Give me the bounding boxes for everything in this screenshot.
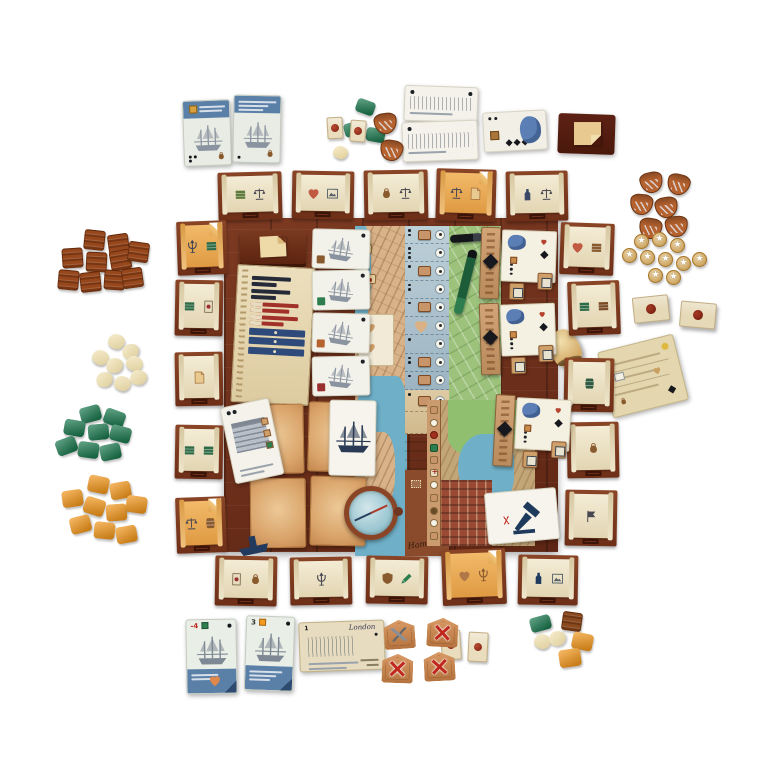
edge-tile-right-4[interactable] (567, 422, 620, 479)
tag-token[interactable] (418, 266, 431, 276)
brown-crate-supply-piece[interactable] (83, 229, 106, 251)
seal-blocks-right-piece[interactable] (679, 300, 717, 329)
edge-tile-left-1[interactable] (176, 220, 228, 276)
pip (408, 288, 411, 291)
folded-corner (208, 498, 221, 511)
panel-plaque (411, 480, 421, 488)
tile-scroll (181, 500, 221, 545)
seal-tiles-bottom-piece[interactable] (467, 631, 489, 662)
coin-supply-piece[interactable] (676, 256, 691, 271)
ship-card-mint[interactable]: -4 (185, 619, 237, 695)
brown-crate-supply-piece[interactable] (127, 241, 151, 264)
caption-line (309, 661, 359, 665)
pip-icon (227, 624, 231, 628)
caption-line (309, 667, 347, 670)
star-circle-icon (435, 302, 445, 312)
tile-scroll (181, 356, 218, 399)
bag-icon (216, 150, 227, 161)
coin-supply-piece[interactable] (622, 248, 637, 263)
chart-bar (251, 288, 290, 294)
pip-icons (189, 155, 197, 163)
track-space (405, 372, 449, 390)
bag-icon (264, 148, 275, 159)
scales-icon (398, 185, 413, 200)
edge-tile-bottom-4[interactable] (441, 548, 507, 606)
chart-bar (251, 301, 299, 307)
pip-icons (523, 431, 526, 443)
crate-icon (233, 187, 248, 202)
purse-supply-piece[interactable] (665, 172, 692, 198)
edge-tile-bottom-1[interactable] (215, 555, 278, 606)
ship-card-mint[interactable]: 3 (244, 615, 296, 692)
barrel-icon (581, 375, 596, 390)
heart-icon (306, 185, 321, 200)
board-ship-card-4[interactable] (312, 355, 371, 396)
star-circle-icon (435, 357, 445, 367)
chart-bar (250, 314, 298, 320)
tag-track-icon (430, 456, 438, 464)
green-track-icon (430, 444, 438, 452)
damage-tokens-piece[interactable] (383, 619, 416, 650)
tile-slot (457, 214, 473, 219)
game-table-photo: Hamburg (0, 0, 780, 780)
purse-supply-piece[interactable] (629, 193, 654, 216)
tile-slot (467, 598, 483, 604)
card-icon (201, 299, 216, 314)
blue-map-blot (519, 116, 541, 144)
goods-icon (259, 619, 266, 626)
green-block-supply-piece[interactable] (63, 418, 86, 437)
pip-icon (375, 633, 378, 636)
auction-card[interactable] (484, 487, 560, 545)
green-block-supply-piece[interactable] (99, 442, 123, 462)
mini-tag-token[interactable] (538, 345, 554, 363)
tag-token[interactable] (418, 375, 431, 385)
coin-supply-piece[interactable] (648, 268, 663, 283)
green-block-supply-piece[interactable] (77, 441, 100, 460)
edge-tile-left-2[interactable] (175, 280, 224, 337)
track-space (405, 335, 449, 353)
corner-mark (280, 678, 292, 690)
engraving-card[interactable] (401, 120, 478, 163)
mixed-pieces-bottom-piece[interactable] (528, 614, 552, 634)
folded-corner (209, 222, 222, 235)
pip-icons (237, 156, 242, 159)
bag-icon (618, 395, 630, 407)
ship-silhouette-card[interactable] (328, 400, 376, 477)
edge-tile-right-1[interactable] (559, 222, 615, 276)
green-block-supply-piece[interactable] (54, 435, 79, 457)
pip-icon (361, 318, 365, 322)
heart-icon (540, 238, 548, 246)
tile-scroll (182, 224, 221, 267)
mini-tag-token[interactable] (511, 357, 527, 375)
caption-line (360, 659, 378, 662)
tile-scroll (298, 175, 349, 212)
goods-mark (317, 297, 325, 305)
tile-scroll (221, 560, 272, 599)
blue-figure-blot (506, 309, 525, 325)
green-block-supply-piece[interactable] (108, 424, 132, 445)
damage-tokens-piece[interactable] (382, 653, 414, 683)
edge-tile-bottom-5[interactable] (518, 554, 579, 605)
city-card-london[interactable]: 1 London (298, 620, 386, 673)
tile-slot (587, 328, 603, 334)
folded-note[interactable] (259, 235, 286, 257)
trident-icon (185, 239, 201, 255)
cross-track-icon (430, 469, 438, 477)
tile-slot (540, 598, 556, 603)
edge-tile-left-5[interactable] (175, 496, 227, 554)
seal-track-icon (430, 431, 438, 439)
ship-icon (324, 273, 357, 306)
heart-icon (538, 310, 546, 318)
mixed-pieces-bottom-piece[interactable] (548, 629, 568, 647)
tile-scroll (447, 552, 501, 598)
card-deck[interactable] (240, 230, 306, 264)
pip-icons (408, 393, 411, 396)
tile-slot (389, 597, 405, 602)
edge-tile-right-5[interactable] (565, 490, 618, 547)
mini-tag-token[interactable] (522, 451, 538, 469)
tag-icon (261, 417, 269, 425)
pip (408, 357, 411, 360)
board-ship-card-1[interactable] (311, 228, 370, 270)
contract-strip (479, 227, 502, 300)
reference-chart-card[interactable] (230, 264, 315, 406)
edge-tile-top-3[interactable] (364, 169, 429, 220)
pip-icon (494, 117, 497, 120)
card-footer (189, 150, 227, 162)
contract-card-3[interactable] (492, 394, 574, 472)
star-circle-icon (435, 375, 445, 385)
city-etching (410, 96, 472, 111)
heart-icon (457, 568, 473, 584)
mixed-pieces-bottom-piece[interactable] (558, 648, 582, 669)
ship-icon (324, 316, 359, 351)
star-circle-icon (435, 284, 445, 294)
pip-icons (408, 229, 411, 236)
blank-card-slot[interactable] (250, 478, 307, 548)
star-circle-icon (435, 266, 445, 276)
heart-icon (570, 239, 586, 255)
folded-corner (479, 171, 492, 184)
tile-scroll (296, 561, 347, 598)
track-blue-section (405, 226, 449, 390)
edge-tile-bottom-3[interactable] (366, 555, 429, 604)
orange-block-supply-piece[interactable] (86, 474, 110, 495)
trident-icon (476, 567, 492, 583)
mini-tag-token[interactable] (509, 283, 525, 301)
bonus-card[interactable] (482, 109, 548, 152)
tile-slot (191, 399, 207, 404)
map-district (440, 480, 492, 546)
caption-line (408, 151, 446, 154)
goods-mark (317, 339, 325, 347)
contract-card-1[interactable] (479, 227, 560, 304)
card-icon (229, 571, 244, 586)
scales-icon (539, 186, 554, 201)
tile-scroll (570, 362, 609, 405)
ship-card-blue[interactable] (182, 99, 232, 167)
tile-slot (195, 268, 211, 274)
blue-figure-blot (508, 235, 527, 251)
tag-token[interactable] (418, 357, 431, 367)
track-space (405, 244, 449, 262)
tag-track-icon (430, 494, 438, 502)
star-circle-icon (435, 230, 445, 240)
edge-tile-left-4[interactable] (175, 425, 224, 480)
shield-icon (380, 570, 395, 585)
chart-bar (251, 295, 276, 300)
edge-tile-bottom-2[interactable] (290, 556, 353, 605)
pip-icon (232, 410, 237, 415)
tile-scroll (573, 426, 614, 471)
barrel-icon (203, 515, 219, 531)
brown-crate-supply-piece[interactable] (79, 271, 102, 293)
orange-block-supply-piece[interactable] (125, 495, 148, 515)
tile-scroll (181, 284, 218, 329)
bag-icon (248, 572, 263, 587)
card-header (183, 100, 230, 119)
tile-scroll (565, 226, 608, 267)
seal-blocks-right-piece[interactable] (632, 294, 671, 324)
edge-tile-top-5[interactable] (506, 170, 569, 221)
purse-supply-piece[interactable] (664, 215, 689, 238)
crate-icon (577, 299, 593, 315)
edge-tile-top-1[interactable] (217, 171, 282, 221)
ship-icon (194, 632, 232, 670)
coin-supply-piece[interactable] (666, 270, 681, 285)
pip (408, 265, 411, 268)
tag-track-icon (430, 406, 438, 414)
pip (408, 284, 411, 287)
crate-icon (596, 298, 612, 314)
tile-scroll (573, 284, 614, 327)
tile-slot (315, 212, 331, 217)
pip-icon (226, 411, 231, 416)
contract-strip (479, 303, 502, 376)
pip-icon (361, 274, 365, 278)
brown-crate-supply-piece[interactable] (85, 251, 107, 272)
pip (408, 393, 411, 396)
orange-block-supply-piece[interactable] (105, 503, 127, 521)
seal-tokens-top-piece[interactable] (326, 117, 343, 140)
circle-track-icon (430, 419, 438, 427)
tag-token[interactable] (418, 230, 431, 240)
pip-icons (408, 284, 411, 291)
pip-icon (361, 360, 365, 364)
goods-icon (201, 622, 208, 629)
tile-slot (581, 405, 597, 410)
blue-figure-blot (522, 402, 541, 418)
dot-track-icon (430, 507, 438, 515)
orange-block-supply-piece[interactable] (61, 489, 84, 509)
crate-icon (201, 443, 216, 458)
heart-icon (554, 406, 562, 414)
pip-icons (408, 265, 411, 268)
tag-token[interactable] (418, 302, 431, 312)
picture-icon (550, 571, 565, 586)
chart-bar (248, 346, 304, 356)
track-space (405, 354, 449, 372)
circle-track-icon (430, 519, 438, 527)
ship-card-blue[interactable] (232, 95, 281, 164)
engraving-card[interactable] (403, 85, 478, 124)
edge-tile-right-2[interactable] (567, 280, 621, 336)
pencil-icon (399, 571, 414, 586)
tile-slot (194, 546, 210, 552)
star-circle-icon (435, 321, 445, 331)
chart-bar (249, 337, 305, 347)
crate-icon (182, 298, 197, 313)
brown-crate-supply-piece[interactable] (57, 269, 80, 291)
diamond-icon (539, 323, 547, 331)
coin-supply-piece[interactable] (670, 238, 685, 253)
contract-strip (492, 394, 516, 467)
card-header (234, 96, 280, 114)
heart-icon[interactable] (412, 317, 430, 335)
chart-bar (252, 282, 277, 287)
tile-slot (578, 268, 594, 274)
tile-slot (388, 213, 404, 218)
coin-icon (661, 342, 669, 350)
damage-tokens-piece[interactable] (426, 617, 458, 648)
tile-slot (529, 214, 545, 219)
green-cubes-loose-piece[interactable] (354, 97, 377, 117)
tile-slot (583, 539, 599, 544)
coin-supply-piece[interactable] (640, 250, 655, 265)
star-circle-icon (435, 339, 445, 349)
purse-supply-piece[interactable] (638, 170, 665, 195)
goods-icon (266, 441, 274, 449)
scales-icon (184, 516, 200, 532)
impact-marks (501, 516, 512, 525)
orange-block-supply-piece[interactable] (93, 521, 116, 540)
board-ship-card-2[interactable] (312, 269, 371, 310)
pip (408, 302, 411, 305)
heart-icon (207, 673, 222, 688)
coin-supply-piece[interactable] (692, 252, 707, 267)
tile-slot (191, 329, 207, 334)
crate-icon (182, 442, 197, 457)
diamond-icon (540, 251, 548, 259)
tile-slot (242, 213, 258, 218)
lower-icon-track (427, 400, 441, 546)
tile-slot (313, 598, 329, 603)
coin-supply-piece[interactable] (652, 232, 667, 247)
folded-note (574, 122, 601, 145)
chart-bar (249, 327, 305, 337)
pip (408, 256, 411, 259)
tile-scroll (524, 559, 573, 598)
board-ship-card-3[interactable] (311, 312, 370, 354)
card-value: 3 (251, 619, 256, 626)
pip (408, 361, 411, 364)
paper-icon (191, 369, 206, 384)
cream-piece-loose-piece[interactable] (332, 145, 349, 160)
city-etching (408, 132, 472, 149)
mini-tag-token[interactable] (537, 273, 553, 291)
tile-scroll (370, 174, 423, 213)
track-space (405, 281, 449, 299)
bottle-icon (520, 187, 535, 202)
pip-icons (408, 375, 411, 378)
green-block-supply-piece[interactable] (87, 423, 109, 441)
gavel-icon (505, 495, 548, 538)
ship-icon (252, 628, 290, 666)
cream-goods-supply-piece[interactable] (129, 369, 147, 385)
bag-icon (379, 186, 394, 201)
edge-tile-top-2[interactable] (292, 170, 355, 219)
diamond-icon (514, 139, 521, 146)
deck-card-with-note[interactable] (557, 113, 615, 155)
tile-slot (585, 471, 601, 476)
goods-icon (490, 131, 499, 140)
paper-icon (468, 186, 483, 201)
coin-supply-piece[interactable] (634, 234, 649, 249)
tile-slot (191, 472, 207, 477)
ship-icon (333, 411, 375, 464)
star-circle-icon (435, 248, 445, 258)
orange-block-supply-piece[interactable] (115, 524, 139, 544)
pip-icons (408, 302, 411, 305)
picture-icon (325, 186, 340, 201)
brown-crate-supply-piece[interactable] (61, 247, 83, 268)
pip-icon (286, 622, 290, 626)
track-space (405, 317, 449, 335)
crate-icon (589, 240, 605, 256)
folded-corner (488, 550, 501, 563)
orange-block-supply-piece[interactable] (68, 514, 92, 536)
pip (408, 234, 411, 237)
goods-mark (317, 255, 325, 263)
brown-crate-supply-piece[interactable] (121, 267, 145, 290)
pip (408, 229, 411, 232)
corner-mark (224, 681, 236, 693)
crate-icon (204, 238, 220, 254)
purse-tokens-loose-piece[interactable] (378, 138, 404, 163)
contract-card-2[interactable] (479, 301, 560, 378)
tile-scroll (512, 175, 563, 214)
diamond-icon (668, 385, 676, 393)
pip (408, 247, 411, 250)
track-space (405, 226, 449, 244)
mixed-pieces-bottom-piece[interactable] (561, 611, 583, 633)
edge-tile-top-4[interactable] (435, 168, 496, 222)
seal-tokens-top-piece[interactable] (349, 119, 366, 142)
pip-icon (361, 234, 365, 238)
ship-icon (324, 232, 359, 267)
pip-icons (408, 338, 411, 341)
tag-track-icon (430, 532, 438, 540)
pip-icons (510, 263, 513, 275)
edge-tile-left-3[interactable] (175, 352, 224, 407)
track-space (405, 262, 449, 280)
trident-icon (313, 571, 328, 586)
tile-scroll (571, 494, 612, 539)
chart-bar (250, 321, 284, 327)
tile-scroll (181, 429, 218, 472)
city-etching (308, 636, 355, 658)
mini-tag-token[interactable] (551, 441, 567, 459)
flag-icon (583, 508, 598, 523)
card-value: 1 (304, 626, 308, 632)
pip (408, 338, 411, 341)
city-name: London (349, 624, 376, 632)
coin-supply-piece[interactable] (658, 252, 673, 267)
compass-rose (344, 486, 398, 540)
